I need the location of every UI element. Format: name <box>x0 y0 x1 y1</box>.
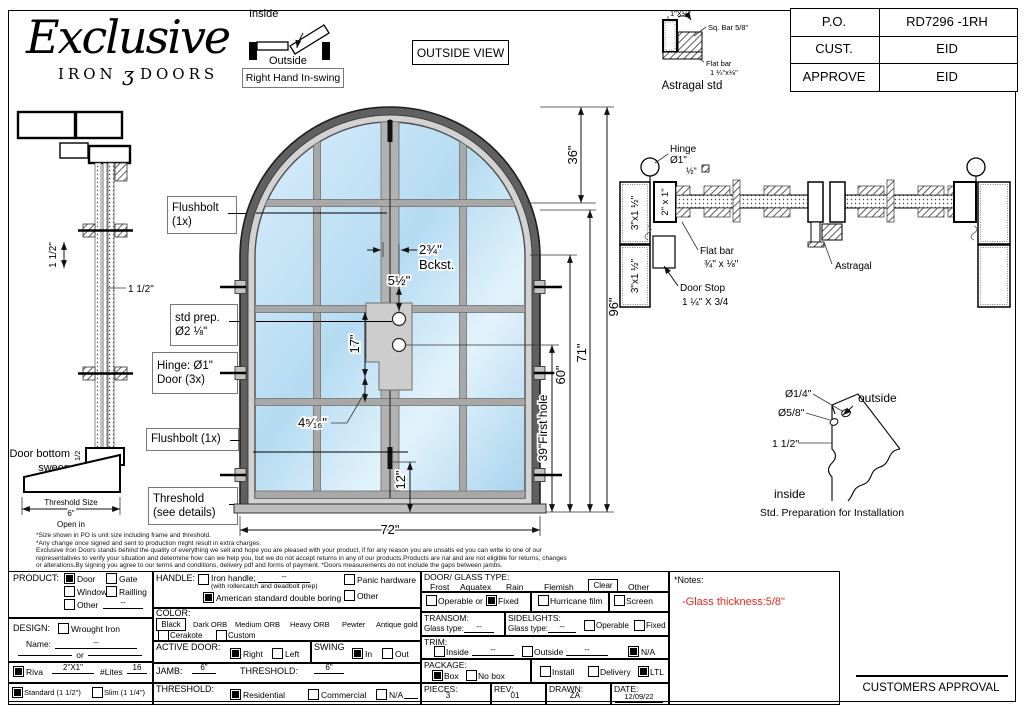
swing-in-label: In <box>365 650 372 659</box>
pieces-value[interactable]: 3 <box>434 691 462 702</box>
glass-clear-selected[interactable]: Clear <box>588 579 618 592</box>
hurricane-label: Hurricane film <box>550 597 602 606</box>
checkbox-operable[interactable] <box>426 595 437 606</box>
drawn-value[interactable]: ZA <box>558 691 592 702</box>
wrought-iron-label: Wrought Iron <box>71 625 120 634</box>
stdprep-dim-fiveeighth: Ø5/8" <box>778 407 805 419</box>
transom-glass-value[interactable]: -- <box>464 622 494 633</box>
glass-frost-label[interactable]: Frost <box>430 583 449 592</box>
checkbox-screen[interactable] <box>614 595 625 606</box>
commercial-label: Commercial <box>321 691 366 700</box>
logo-word-iron: IRON <box>58 65 117 83</box>
glass-type-label: DOOR/ GLASS TYPE: <box>424 573 509 582</box>
lites-value[interactable]: 16 <box>127 663 147 674</box>
package-nobox-label: No box <box>478 672 505 681</box>
design-or-divider: or <box>18 650 142 660</box>
section-dim-1half-v: 1 1/2" <box>48 242 59 268</box>
sweep-half-dim: 1/2 <box>73 451 82 461</box>
checkbox-riva[interactable] <box>13 666 24 677</box>
handle-other-label: Other <box>357 592 378 601</box>
jamb-threshold-value[interactable]: 6" <box>314 663 344 674</box>
logo-flourish-icon: ʒ <box>123 62 134 86</box>
operable-label: Operable or <box>438 597 483 606</box>
rev-value[interactable]: 01 <box>500 691 530 702</box>
deadbolt-hole <box>393 313 406 326</box>
plan-hinge-label1: Hinge <box>670 144 697 155</box>
company-logo: Exclusive IRON ʒ DOORS <box>26 14 241 86</box>
plan-astragal-label: Astragal <box>835 261 872 272</box>
approve-label-cell: APPROVE <box>790 62 878 90</box>
swing-outside-label: Outside <box>269 56 307 67</box>
checkbox-ltl[interactable] <box>638 666 649 677</box>
dim-5half: 5½" <box>388 273 411 288</box>
plan-jamb-3x15-label-a: 3"x1 ½" <box>630 195 641 230</box>
glass-thickness-note: -Glass thickness:5/8" <box>682 596 785 608</box>
door-label: Door <box>77 575 95 584</box>
handle-hole <box>393 339 406 352</box>
logo-word-doors: DOORS <box>140 65 218 83</box>
railling-label: Railling <box>119 588 147 597</box>
product-other-label: Other <box>77 601 98 610</box>
order-sheet: Exclusive IRON ʒ DOORS Inside Outside Ri… <box>0 0 1024 712</box>
checkbox-fixed[interactable] <box>486 595 497 606</box>
stdprep-dim-oneandhalf: 1 1/2" <box>772 438 799 450</box>
stdprep-inside-label: inside <box>774 487 806 501</box>
door-stop-rect <box>653 236 675 268</box>
trim-na-label: N/A <box>641 648 655 657</box>
threshold-na-value[interactable] <box>404 688 418 699</box>
checkbox-cerakote[interactable] <box>158 630 169 641</box>
install-label: Install <box>552 668 574 677</box>
door-elevation-drawing: 36" 96" 71" 60" 39"First hole 12" 17" 2¾… <box>215 95 625 540</box>
checkbox-package-nobox[interactable] <box>466 670 477 681</box>
iron-handle-sub-label: (with rollercatch and deadbolt prep) <box>211 584 318 591</box>
outside-view-box: OUTSIDE VIEW <box>412 40 509 65</box>
checkbox-window[interactable] <box>64 586 75 597</box>
color-label: COLOR: <box>156 609 191 618</box>
swing-type-box: Right Hand In-swing <box>242 68 344 88</box>
notes-box <box>668 571 840 705</box>
iron-handle-label: Iron handle; <box>211 574 256 583</box>
swing-out-label: Out <box>395 650 409 659</box>
square-bar-icon <box>702 165 709 172</box>
plan-doorstop-label1: Door Stop <box>680 283 725 294</box>
stdprep-outside-label: outside <box>858 391 897 405</box>
gate-label: Gate <box>119 575 137 584</box>
dim-39-first-hole: 39"First hole <box>536 394 550 461</box>
window-label: Window <box>77 588 107 597</box>
checkbox-hurricane[interactable] <box>538 595 549 606</box>
checkbox-trim-outside[interactable] <box>522 646 533 657</box>
checkbox-residential[interactable] <box>230 689 241 700</box>
astragal-detail-drawing: 1"X½" Sq. Bar 5/8" Flat bar 1 ¼"x⅛" Astr… <box>628 8 768 100</box>
threshold-label: THRESHOLD: <box>156 685 214 694</box>
approval-signature-line[interactable] <box>856 675 1008 677</box>
active-door-label: ACTIVE DOOR: <box>156 643 221 652</box>
plan-hinge-label2: Ø1" <box>670 155 687 166</box>
glass-flemish-label[interactable]: Flemish <box>544 583 574 592</box>
swing-inside-label: Inside <box>249 9 278 20</box>
sidelights-glass-value[interactable]: -- <box>548 622 576 633</box>
threshold-na-label: N/A <box>389 691 403 700</box>
transom-label: TRANSOM: <box>424 614 469 623</box>
trim-inside-label: Inside <box>446 648 469 657</box>
checkbox-standard[interactable] <box>12 687 23 698</box>
trim-inside-value[interactable]: -- <box>472 645 514 656</box>
cerakote-label: Cerakote <box>170 632 202 640</box>
trim-outside-label: Outside <box>534 648 563 657</box>
date-value[interactable]: 12/09/22 <box>615 692 663 703</box>
astragal-sqbar-label: Sq. Bar 5/8" <box>708 23 749 32</box>
hinge-circle-right <box>967 158 985 176</box>
fixed-label: Fixed <box>498 597 519 606</box>
checkbox-american-boring[interactable] <box>203 592 214 603</box>
panic-label: Panic hardware <box>357 576 416 585</box>
lites-label: #Lites <box>100 668 123 677</box>
active-right-label: Right <box>243 650 263 659</box>
swing-type-label: Right Hand In-swing <box>246 72 341 84</box>
glass-other-label[interactable]: Other <box>628 583 649 592</box>
sidelights-operable-label: Operable <box>596 622 629 630</box>
package-box-label: Box <box>444 672 459 681</box>
plan-doorstop-label2: 1 ¼" X 3/4 <box>682 296 729 308</box>
plan-section-drawing: Hinge Ø1" ½" 2" x 1" 3"x1 ½" 3"x1 ½" Fla… <box>618 138 1018 323</box>
checkbox-sidelights-fixed[interactable] <box>634 620 645 631</box>
screen-label: Screen <box>626 597 653 606</box>
slim-label: Slim (1 1/4") <box>104 689 145 697</box>
flushbolt-top-mark <box>388 120 393 142</box>
checkbox-slim[interactable] <box>92 687 103 698</box>
dim-backset: 2¾" <box>419 242 442 257</box>
disclaimer-text: *Size shown in PO is unit size including… <box>36 532 636 570</box>
notes-title: *Notes: <box>674 576 704 585</box>
astragal-flatbar-label1: Flat bar <box>706 59 732 68</box>
checkbox-trim-inside[interactable] <box>434 646 445 657</box>
checkbox-iron-handle[interactable] <box>198 574 209 585</box>
residential-label: Residential <box>243 691 285 700</box>
flushbolt-bottom-mark <box>388 447 393 469</box>
cust-value-cell: EID <box>878 35 1016 62</box>
design-label: DESIGN: <box>13 624 50 633</box>
astragal-dim-label: 1"X½" <box>670 9 691 18</box>
delivery-label: Delivery <box>600 668 631 677</box>
checkbox-install[interactable] <box>540 666 551 677</box>
trim-outside-value[interactable]: -- <box>566 645 608 656</box>
checkbox-wrought-iron[interactable] <box>58 623 69 634</box>
active-left-label: Left <box>285 650 299 659</box>
checkbox-active-right[interactable] <box>230 648 241 659</box>
jamb-value[interactable]: 6" <box>192 663 216 674</box>
checkbox-railling[interactable] <box>106 586 117 597</box>
sidelights-fixed-label: Fixed <box>646 622 666 630</box>
dim-60: 60" <box>553 365 568 384</box>
plan-flatbar-label2: ¾" x ⅛" <box>704 259 739 270</box>
checkbox-handle-other[interactable] <box>344 590 355 601</box>
std-prep-drawing: Ø1/4" Ø5/8" 1 1/2" outside inside Std. P… <box>740 385 1020 535</box>
checkbox-delivery[interactable] <box>588 666 599 677</box>
glass-rain-label[interactable]: Rain <box>506 583 523 592</box>
color-antiquegold-label[interactable]: Antique gold <box>376 621 418 629</box>
stdprep-caption: Std. Preparation for Installation <box>760 507 904 519</box>
po-label-cell: P.O. <box>790 8 878 35</box>
american-boring-label: American standard double boring <box>216 594 341 603</box>
ltl-label: LTL <box>650 668 664 677</box>
color-mediumorb-label[interactable]: Medium ORB <box>235 621 280 629</box>
sill <box>234 504 546 513</box>
checkbox-trim-na[interactable] <box>628 646 639 657</box>
checkbox-threshold-na[interactable] <box>376 689 387 700</box>
approval-label: CUSTOMERS APPROVAL <box>846 682 1016 694</box>
design-name-value[interactable]: -- <box>55 638 137 649</box>
design-name-label: Name: <box>26 640 51 649</box>
handle-label: HANDLE: <box>156 574 195 583</box>
product-label: PRODUCT: <box>13 574 59 583</box>
iron-handle-value[interactable]: -- <box>258 572 310 583</box>
hinge-circle-left <box>641 158 659 176</box>
dim-12: 12" <box>393 470 408 489</box>
cust-label-cell: CUST. <box>790 35 878 62</box>
approve-value-cell: EID <box>878 62 1016 90</box>
color-pewter-label[interactable]: Pewter <box>342 621 365 629</box>
threshold-size-value: 6" <box>67 509 74 518</box>
checkbox-package-box[interactable] <box>432 670 443 681</box>
plan-half-square-label: ½" <box>686 166 697 176</box>
astragal-caption: Astragal std <box>662 80 723 92</box>
dim-71: 71" <box>574 343 589 362</box>
standard-label: Standard (1 1/2") <box>24 689 81 697</box>
door-bottom-sweep-label1: Door bottom <box>9 448 70 460</box>
glass-aquatex-label[interactable]: Aquatex <box>460 583 491 592</box>
color-darkorb-label[interactable]: Dark ORB <box>193 621 227 629</box>
package-label: PACKAGE: <box>424 661 467 670</box>
transom-glass-label: Glass type: <box>424 625 464 633</box>
riva-size-value[interactable]: 2"X1" <box>52 663 94 674</box>
checkbox-swing-in[interactable] <box>352 648 363 659</box>
plan-jamb-3x15-label-b: 3"x1 ½" <box>630 258 641 293</box>
section-dim-1half-h: 1 1/2" <box>128 284 154 295</box>
checkbox-swing-out[interactable] <box>382 648 393 659</box>
checkbox-sidelights-operable[interactable] <box>584 620 595 631</box>
checkbox-product-other[interactable] <box>64 599 75 610</box>
sidelights-glass-label: Glass type: <box>508 625 548 633</box>
swing-label: SWING <box>314 643 345 652</box>
custom-label: Custom <box>228 632 256 640</box>
threshold-open-label: Open in <box>57 520 85 529</box>
dim-4-5-16: 4⁵⁄₁₆" <box>298 415 327 430</box>
checkbox-active-left[interactable] <box>272 648 283 659</box>
jamb-threshold-label: THRESHOLD: <box>240 667 298 676</box>
stdprep-dim-quarter: Ø1/4" <box>785 388 812 400</box>
dim-36: 36" <box>565 145 580 164</box>
threshold-size-label: Threshold Size <box>44 498 98 507</box>
checkbox-door[interactable] <box>64 573 75 584</box>
jamb-label: JAMB: <box>156 667 183 676</box>
checkbox-commercial[interactable] <box>308 689 319 700</box>
logo-script-text: Exclusive <box>26 14 241 60</box>
checkbox-panic[interactable] <box>344 574 355 585</box>
plan-flatbar-label1: Flat bar <box>700 246 735 257</box>
riva-label: Riva <box>26 668 43 677</box>
dim-17: 17" <box>347 334 362 353</box>
checkbox-gate[interactable] <box>106 573 117 584</box>
outside-view-label: OUTSIDE VIEW <box>417 46 504 60</box>
astragal-flatbar-label2: 1 ¼"x⅛" <box>710 68 738 77</box>
color-heavyorb-label[interactable]: Heavy ORB <box>290 621 330 629</box>
plan-jamb-2x1-label: 2" x 1" <box>660 188 671 215</box>
product-other-value[interactable]: -- <box>103 598 143 609</box>
checkbox-custom[interactable] <box>216 630 227 641</box>
dim-backset-label: Bckst. <box>419 257 454 272</box>
po-value-cell: RD7296 -1RH <box>878 8 1016 35</box>
